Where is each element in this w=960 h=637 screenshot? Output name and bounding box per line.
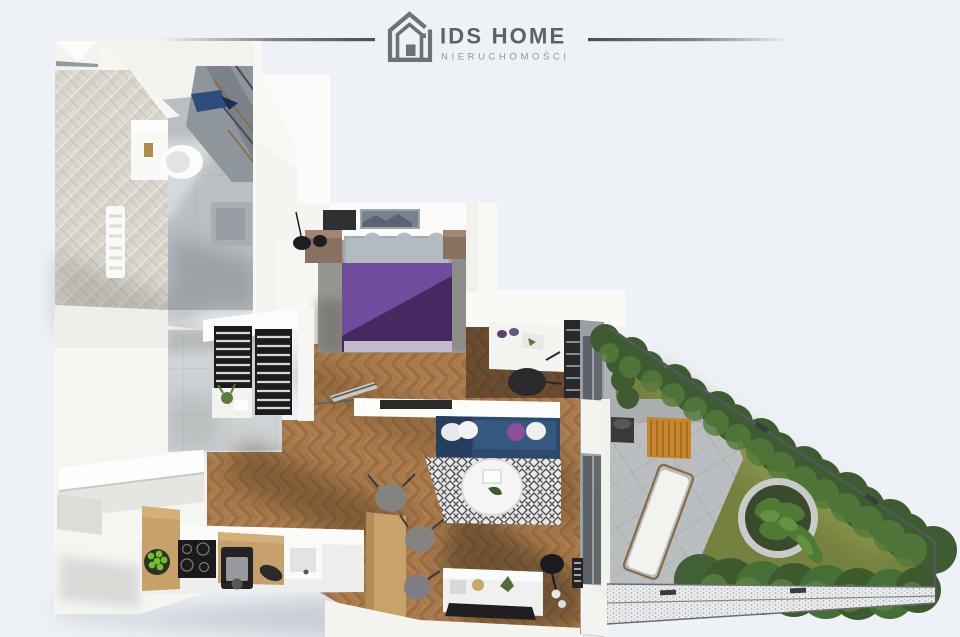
svg-text:IDS HOME: IDS HOME [440, 24, 566, 49]
svg-text:NIERUCHOMOŚCI: NIERUCHOMOŚCI [441, 51, 570, 63]
